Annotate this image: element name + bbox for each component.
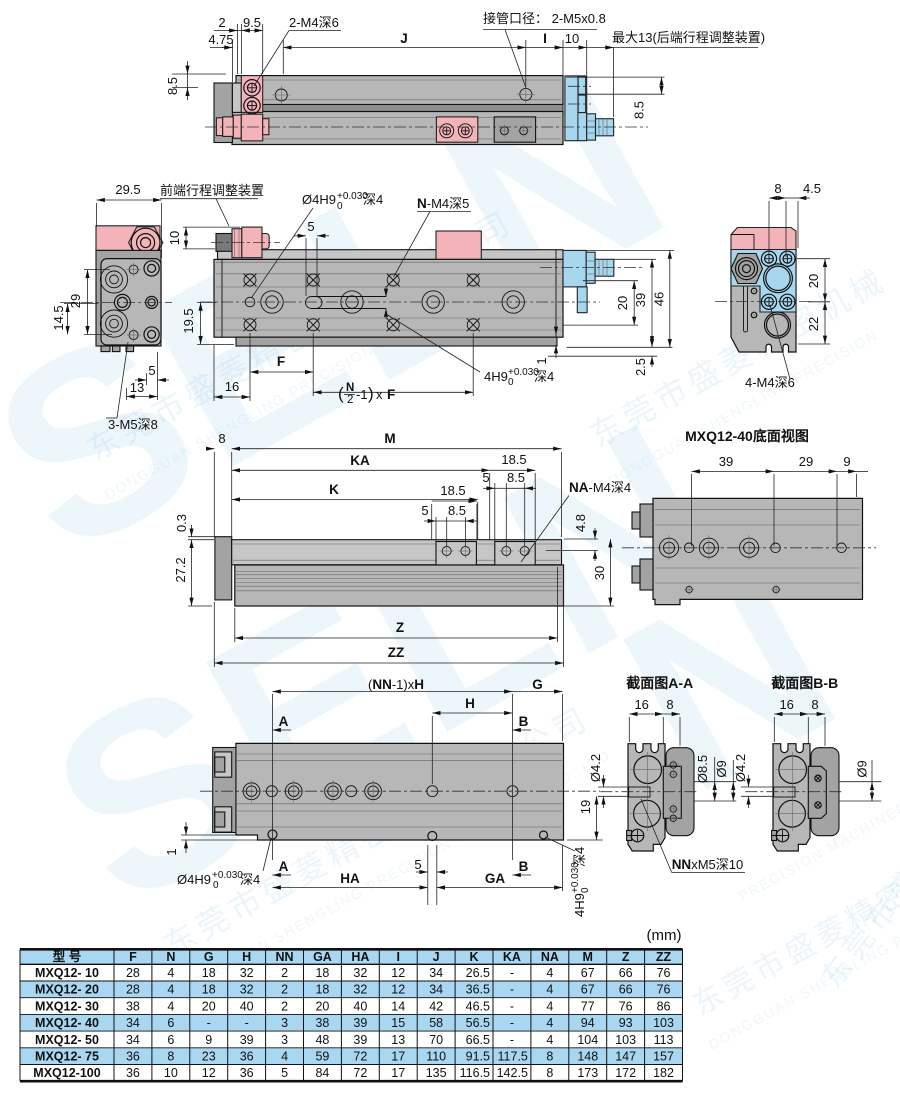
svg-text:N-M4深5: N-M4深5 xyxy=(417,196,469,211)
svg-text:Ø9: Ø9 xyxy=(714,760,729,777)
svg-text:2: 2 xyxy=(281,999,288,1013)
svg-text:59: 59 xyxy=(315,1049,329,1063)
svg-text:4: 4 xyxy=(167,966,174,980)
svg-text:30: 30 xyxy=(592,566,607,580)
svg-text:28: 28 xyxy=(126,983,140,997)
svg-text:2: 2 xyxy=(218,15,225,30)
svg-text:MXQ12-100: MXQ12-100 xyxy=(33,1066,100,1080)
svg-text:67: 67 xyxy=(581,966,595,980)
svg-text:6: 6 xyxy=(167,1033,174,1047)
svg-text:173: 173 xyxy=(577,1066,598,1080)
svg-text:86: 86 xyxy=(657,999,671,1013)
svg-text:103: 103 xyxy=(653,1016,674,1030)
svg-text:157: 157 xyxy=(653,1049,674,1063)
svg-text:22: 22 xyxy=(806,317,821,331)
svg-text:型 号: 型 号 xyxy=(53,949,81,964)
svg-text:36: 36 xyxy=(126,1066,140,1080)
svg-text:Ø4H9: Ø4H9 xyxy=(177,872,211,887)
svg-text:26.5: 26.5 xyxy=(466,966,490,980)
svg-text:148: 148 xyxy=(577,1049,598,1063)
svg-text:4: 4 xyxy=(546,983,553,997)
svg-text:NA-M4深4: NA-M4深4 xyxy=(569,480,631,495)
svg-text:20: 20 xyxy=(315,999,329,1013)
svg-text:ZZ: ZZ xyxy=(656,950,672,964)
svg-text:0.3: 0.3 xyxy=(174,514,189,532)
svg-text:38: 38 xyxy=(126,999,140,1013)
svg-text:ZZ: ZZ xyxy=(388,645,405,660)
svg-text:(: ( xyxy=(338,384,344,403)
svg-text:HA: HA xyxy=(351,950,369,964)
svg-text:Z: Z xyxy=(396,620,404,635)
svg-text:x: x xyxy=(376,387,383,402)
svg-text:20: 20 xyxy=(615,296,630,310)
svg-text:-: - xyxy=(510,1033,514,1047)
svg-text:34: 34 xyxy=(126,1016,140,1030)
svg-text:4: 4 xyxy=(167,983,174,997)
svg-text:14: 14 xyxy=(391,999,405,1013)
svg-text:GA: GA xyxy=(313,950,332,964)
svg-text:KA: KA xyxy=(350,453,370,468)
svg-text:20: 20 xyxy=(202,999,216,1013)
svg-text:66: 66 xyxy=(619,983,633,997)
svg-text:17: 17 xyxy=(391,1066,405,1080)
svg-text:103: 103 xyxy=(615,1033,636,1047)
svg-text:72: 72 xyxy=(353,1049,367,1063)
svg-text:I: I xyxy=(543,31,547,46)
svg-text:截面图B-B: 截面图B-B xyxy=(771,675,838,691)
svg-text:H: H xyxy=(242,950,251,964)
svg-text:4.5: 4.5 xyxy=(803,181,821,196)
svg-text:5: 5 xyxy=(281,1066,288,1080)
svg-text:4: 4 xyxy=(167,999,174,1013)
svg-text:4-M4深6: 4-M4深6 xyxy=(745,375,795,390)
svg-text:18: 18 xyxy=(315,966,329,980)
svg-text:39: 39 xyxy=(240,1033,254,1047)
svg-text:(NN-1)xH: (NN-1)xH xyxy=(368,677,424,692)
svg-text:18.5: 18.5 xyxy=(440,483,465,498)
svg-text:深4: 深4 xyxy=(534,369,554,384)
svg-text:172: 172 xyxy=(615,1066,636,1080)
svg-text:29: 29 xyxy=(68,294,83,308)
svg-text:4: 4 xyxy=(546,1016,553,1030)
svg-text:G: G xyxy=(532,677,543,692)
svg-text:F: F xyxy=(129,950,137,964)
svg-text:36: 36 xyxy=(126,1049,140,1063)
svg-text:39: 39 xyxy=(719,454,733,469)
svg-text:36: 36 xyxy=(240,1066,254,1080)
svg-text:8.5: 8.5 xyxy=(448,503,466,518)
svg-text:4: 4 xyxy=(281,1049,288,1063)
svg-text:8.5: 8.5 xyxy=(507,470,525,485)
svg-text:-: - xyxy=(510,1016,514,1030)
svg-text:76: 76 xyxy=(657,966,671,980)
svg-text:-1: -1 xyxy=(356,387,368,402)
svg-text:116.5: 116.5 xyxy=(460,1066,490,1080)
svg-text:14.5: 14.5 xyxy=(51,305,66,330)
svg-text:NN: NN xyxy=(276,950,294,964)
svg-text:147: 147 xyxy=(615,1049,636,1063)
svg-text:M: M xyxy=(583,950,593,964)
svg-text:2: 2 xyxy=(281,983,288,997)
svg-text:MXQ12- 75: MXQ12- 75 xyxy=(35,1049,99,1063)
svg-text:12: 12 xyxy=(391,966,405,980)
svg-text:前端行程调整装置: 前端行程调整装置 xyxy=(160,183,264,198)
svg-text:4: 4 xyxy=(546,966,553,980)
svg-text:H: H xyxy=(465,696,475,711)
svg-text:182: 182 xyxy=(653,1066,674,1080)
svg-text:67: 67 xyxy=(581,983,595,997)
svg-text:10: 10 xyxy=(565,31,579,46)
svg-text:39: 39 xyxy=(353,1016,367,1030)
svg-text:A: A xyxy=(279,859,289,874)
svg-text:12: 12 xyxy=(391,983,405,997)
svg-text:29.5: 29.5 xyxy=(115,182,140,197)
svg-text:113: 113 xyxy=(654,1033,674,1047)
svg-text:20: 20 xyxy=(806,274,821,288)
svg-text:72: 72 xyxy=(353,1066,367,1080)
svg-text:N: N xyxy=(166,950,175,964)
svg-text:8: 8 xyxy=(167,1049,174,1063)
svg-text:16: 16 xyxy=(779,697,793,712)
svg-text:70: 70 xyxy=(429,1033,443,1047)
svg-text:8.5: 8.5 xyxy=(632,101,647,119)
svg-text:4.8: 4.8 xyxy=(573,514,588,532)
svg-text:42: 42 xyxy=(429,999,443,1013)
svg-text:135: 135 xyxy=(426,1066,447,1080)
svg-text:B: B xyxy=(519,714,529,729)
svg-text:48: 48 xyxy=(315,1033,329,1047)
svg-text:2.5: 2.5 xyxy=(633,358,648,376)
svg-text:38: 38 xyxy=(315,1016,329,1030)
svg-text:深4: 深4 xyxy=(240,872,260,887)
svg-text:2: 2 xyxy=(281,966,288,980)
svg-text:66.5: 66.5 xyxy=(466,1033,490,1047)
svg-text:MXQ12- 50: MXQ12- 50 xyxy=(35,1033,99,1047)
svg-text:0: 0 xyxy=(580,887,591,893)
svg-text:Ø4H9: Ø4H9 xyxy=(302,192,336,207)
svg-text:32: 32 xyxy=(240,966,254,980)
svg-text:104: 104 xyxy=(577,1033,598,1047)
svg-text:KA: KA xyxy=(503,950,521,964)
svg-text:117.5: 117.5 xyxy=(498,1049,528,1063)
svg-text:10: 10 xyxy=(164,1066,178,1080)
svg-text:MXQ12- 10: MXQ12- 10 xyxy=(35,966,99,980)
svg-text:84: 84 xyxy=(315,1066,329,1080)
svg-text:76: 76 xyxy=(657,983,671,997)
svg-text:18.5: 18.5 xyxy=(501,452,526,467)
svg-text:5: 5 xyxy=(421,503,428,518)
svg-text:8: 8 xyxy=(811,697,818,712)
svg-text:0: 0 xyxy=(508,377,514,388)
svg-text:Ø8.5: Ø8.5 xyxy=(695,755,710,783)
svg-text:K: K xyxy=(329,482,339,497)
svg-text:4: 4 xyxy=(546,1033,553,1047)
svg-text:MXQ12-40底面视图: MXQ12-40底面视图 xyxy=(685,428,809,444)
svg-text:NA: NA xyxy=(541,950,559,964)
svg-text:9: 9 xyxy=(843,454,850,469)
svg-text:18: 18 xyxy=(315,983,329,997)
svg-text:8: 8 xyxy=(666,697,673,712)
svg-text:34: 34 xyxy=(429,966,443,980)
svg-text:32: 32 xyxy=(240,983,254,997)
svg-text:J: J xyxy=(400,31,408,46)
svg-text:K: K xyxy=(470,950,479,964)
svg-text:66: 66 xyxy=(619,966,633,980)
svg-text:93: 93 xyxy=(619,1016,633,1030)
svg-text:58: 58 xyxy=(429,1016,443,1030)
svg-text:34: 34 xyxy=(429,983,443,997)
svg-text:8: 8 xyxy=(218,431,225,446)
svg-text:Ø4.2: Ø4.2 xyxy=(733,754,748,782)
svg-text:5: 5 xyxy=(414,857,421,872)
svg-text:深4: 深4 xyxy=(363,192,383,207)
svg-text:40: 40 xyxy=(240,999,254,1013)
svg-text:46.5: 46.5 xyxy=(466,999,490,1013)
svg-text:-: - xyxy=(207,1016,211,1030)
svg-text:36.5: 36.5 xyxy=(466,983,490,997)
svg-text:GA: GA xyxy=(485,871,506,886)
svg-text:(mm): (mm) xyxy=(647,927,682,944)
svg-text:9.5: 9.5 xyxy=(243,15,261,30)
svg-text:1: 1 xyxy=(534,357,549,364)
svg-text:32: 32 xyxy=(353,966,367,980)
svg-text:8: 8 xyxy=(546,1066,553,1080)
svg-text:1: 1 xyxy=(164,848,179,855)
svg-text:F: F xyxy=(387,387,395,402)
svg-text:): ) xyxy=(368,384,374,403)
svg-text:N: N xyxy=(346,382,354,394)
svg-text:8: 8 xyxy=(546,1049,553,1063)
svg-text:接管口径： 2-M5x0.8: 接管口径： 2-M5x0.8 xyxy=(483,11,606,26)
svg-text:截面图A-A: 截面图A-A xyxy=(626,675,693,691)
svg-text:MXQ12- 30: MXQ12- 30 xyxy=(35,999,99,1013)
svg-text:MXQ12- 40: MXQ12- 40 xyxy=(35,1016,99,1030)
svg-text:2-M4深6: 2-M4深6 xyxy=(289,15,339,30)
svg-text:4H9: 4H9 xyxy=(484,369,508,384)
svg-text:-: - xyxy=(245,1016,249,1030)
svg-text:Z: Z xyxy=(622,950,630,964)
svg-text:深4: 深4 xyxy=(572,847,587,867)
svg-text:5: 5 xyxy=(482,470,489,485)
svg-text:19: 19 xyxy=(578,800,593,814)
svg-text:23: 23 xyxy=(202,1049,216,1063)
svg-text:18: 18 xyxy=(202,983,216,997)
svg-text:27.2: 27.2 xyxy=(173,557,188,582)
svg-text:94: 94 xyxy=(581,1016,595,1030)
svg-text:F: F xyxy=(277,354,285,369)
svg-text:36: 36 xyxy=(240,1049,254,1063)
svg-text:5: 5 xyxy=(148,363,155,378)
svg-text:16: 16 xyxy=(225,379,239,394)
svg-text:40: 40 xyxy=(353,999,367,1013)
svg-text:18: 18 xyxy=(202,966,216,980)
svg-text:3-M5深8: 3-M5深8 xyxy=(108,417,158,432)
svg-text:4H9: 4H9 xyxy=(572,893,587,917)
svg-text:-: - xyxy=(510,966,514,980)
svg-text:39: 39 xyxy=(633,293,648,307)
svg-text:142.5: 142.5 xyxy=(497,1066,528,1080)
svg-text:32: 32 xyxy=(353,983,367,997)
svg-text:91.5: 91.5 xyxy=(466,1049,490,1063)
svg-text:B: B xyxy=(519,859,529,874)
svg-text:4.75: 4.75 xyxy=(208,32,233,47)
svg-text:8: 8 xyxy=(774,181,781,196)
svg-text:39: 39 xyxy=(353,1033,367,1047)
svg-text:4: 4 xyxy=(546,999,553,1013)
svg-text:J: J xyxy=(433,950,440,964)
svg-text:29: 29 xyxy=(799,454,813,469)
svg-text:19.5: 19.5 xyxy=(181,308,196,333)
svg-text:17: 17 xyxy=(391,1049,405,1063)
svg-text:16: 16 xyxy=(634,697,648,712)
svg-text:HA: HA xyxy=(340,871,360,886)
svg-text:M: M xyxy=(384,431,395,446)
svg-text:76: 76 xyxy=(619,999,633,1013)
svg-text:28: 28 xyxy=(126,966,140,980)
svg-text:I: I xyxy=(397,950,400,964)
svg-text:6: 6 xyxy=(167,1016,174,1030)
svg-text:13: 13 xyxy=(391,1033,405,1047)
svg-text:MXQ12- 20: MXQ12- 20 xyxy=(35,983,99,997)
svg-text:NNxM5深10: NNxM5深10 xyxy=(672,857,744,872)
svg-text:A: A xyxy=(279,714,289,729)
svg-text:0: 0 xyxy=(213,880,219,891)
svg-text:10: 10 xyxy=(167,231,182,245)
svg-text:5: 5 xyxy=(307,219,314,234)
svg-text:Ø4.2: Ø4.2 xyxy=(588,754,603,782)
svg-text:0: 0 xyxy=(337,201,343,212)
svg-text:12: 12 xyxy=(202,1066,216,1080)
svg-text:34: 34 xyxy=(126,1033,140,1047)
svg-text:G: G xyxy=(204,950,214,964)
svg-text:-: - xyxy=(510,999,514,1013)
svg-text:46: 46 xyxy=(652,292,667,306)
svg-text:110: 110 xyxy=(426,1049,446,1063)
svg-text:13: 13 xyxy=(130,380,144,395)
svg-text:56.5: 56.5 xyxy=(466,1016,490,1030)
svg-text:8.5: 8.5 xyxy=(165,77,180,95)
svg-text:-: - xyxy=(510,983,514,997)
svg-text:9: 9 xyxy=(205,1033,212,1047)
svg-text:Ø9: Ø9 xyxy=(855,760,870,777)
svg-text:3: 3 xyxy=(281,1016,288,1030)
svg-text:15: 15 xyxy=(391,1016,405,1030)
svg-text:2: 2 xyxy=(347,394,353,406)
svg-text:最大13(后端行程调整装置): 最大13(后端行程调整装置) xyxy=(612,30,765,45)
svg-text:77: 77 xyxy=(581,999,595,1013)
svg-text:3: 3 xyxy=(281,1033,288,1047)
